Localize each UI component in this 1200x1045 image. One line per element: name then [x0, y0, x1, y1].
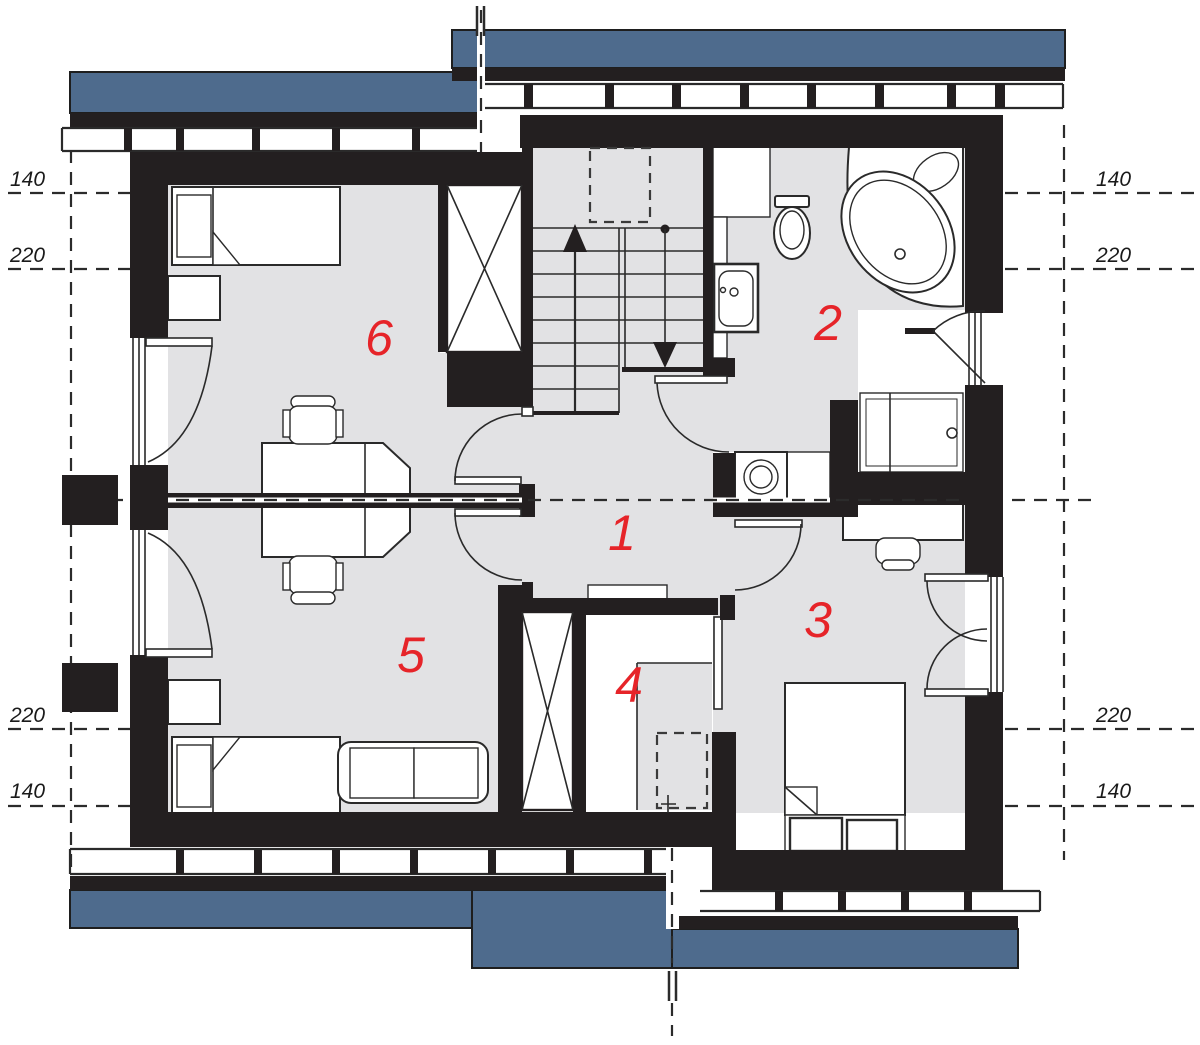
window-mullions-top-right — [524, 84, 1005, 108]
window-mullions-bottom-right — [775, 891, 972, 911]
balcony-divider-upper — [62, 475, 118, 525]
bed-room6 — [172, 187, 340, 265]
dim-right-220-bottom: 220 — [1095, 704, 1131, 727]
balcony-divider-lower — [62, 663, 118, 712]
wardrobe-bottom — [522, 612, 573, 810]
bed-room5 — [172, 737, 340, 815]
washing-machine-counter — [735, 452, 830, 503]
room-number-6: 6 — [365, 310, 393, 366]
dim-right-140-top: 140 — [1096, 168, 1131, 191]
chair-room6 — [283, 396, 343, 444]
pillow — [177, 195, 211, 257]
dim-right-140-bottom: 140 — [1096, 780, 1131, 803]
dim-left-220-bottom: 220 — [9, 704, 45, 727]
room-number-1: 1 — [608, 505, 636, 561]
bed-room3 — [785, 683, 905, 852]
room-number-4: 4 — [615, 657, 643, 713]
bench-room5 — [338, 742, 488, 803]
nightstand-room5 — [168, 680, 220, 724]
pillow — [847, 820, 897, 851]
pillow — [790, 818, 842, 851]
pillow — [177, 745, 211, 807]
window-mullions-bottom-left — [176, 850, 652, 874]
window-mullions-top-left — [124, 128, 420, 151]
wardrobe-top — [447, 185, 522, 352]
room-number-3: 3 — [804, 592, 832, 648]
nightstand-room6 — [168, 276, 220, 320]
chair-room5 — [283, 556, 343, 604]
shower — [860, 393, 963, 472]
dim-left-220-top: 220 — [9, 244, 45, 267]
floor-plan-page: 1 2 3 4 5 6 140 220 220 140 140 220 220 … — [0, 0, 1200, 1045]
toilet — [774, 196, 810, 259]
dim-left-140-bottom: 140 — [10, 780, 45, 803]
sink — [714, 264, 758, 332]
room-number-5: 5 — [397, 627, 425, 683]
dim-left-140-top: 140 — [10, 168, 45, 191]
hall-shelf — [588, 585, 667, 599]
room4-door-leaf — [714, 617, 722, 709]
dim-right-220-top: 220 — [1095, 244, 1131, 267]
room-number-2: 2 — [813, 295, 842, 351]
floor-plan-drawing: 1 2 3 4 5 6 140 220 220 140 140 220 220 … — [0, 0, 1200, 1045]
section-line-top — [477, 6, 485, 152]
